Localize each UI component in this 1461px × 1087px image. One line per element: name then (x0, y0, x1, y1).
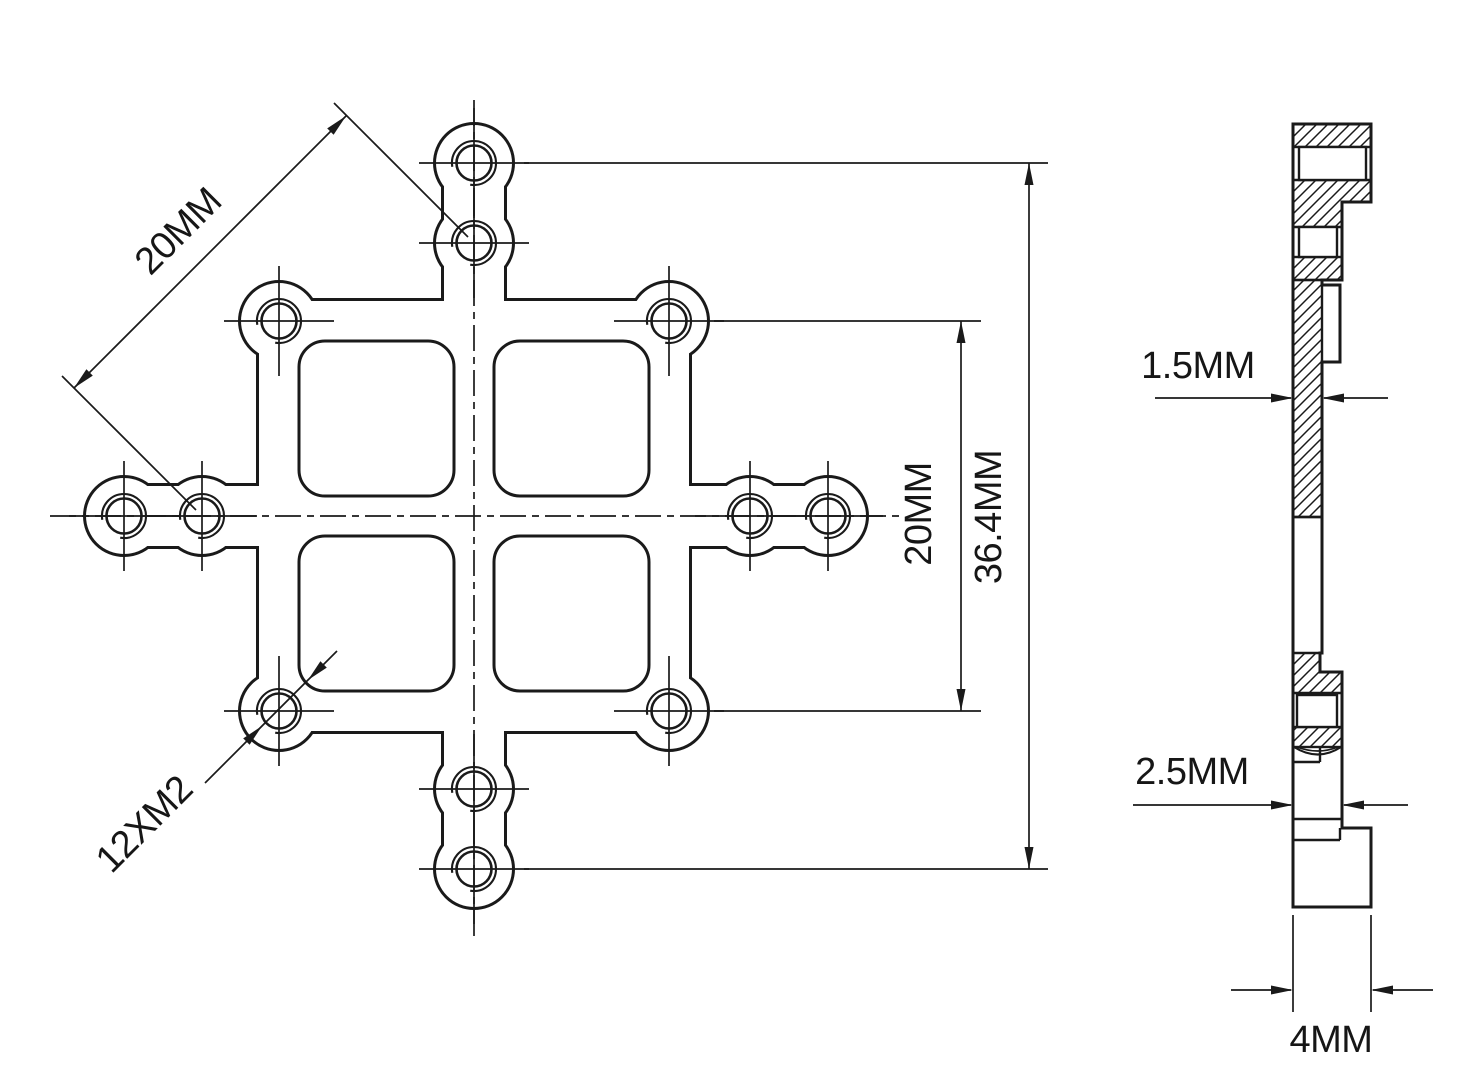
arrowhead (1322, 394, 1344, 403)
dim-label-overall: 36.4MM (968, 450, 1010, 584)
dim-label-diagonal: 20MM (127, 180, 230, 283)
arrowhead (1271, 801, 1293, 810)
arrowhead (1025, 163, 1034, 185)
dim-label-web: 1.5MM (1141, 345, 1255, 387)
dim-label-mid: 2.5MM (1135, 751, 1249, 793)
dim-label-base: 4MM (1290, 1019, 1373, 1061)
hole-section (1299, 227, 1337, 257)
arrowhead (1342, 801, 1364, 810)
side-view: 1.5MM 2.5MM 4MM (1133, 124, 1433, 1061)
dim-label-vertical: 20MM (898, 462, 940, 566)
thread-callout-label: 12XM2 (88, 768, 201, 881)
hatch-region (1293, 653, 1342, 693)
opening-cutout-top-left (299, 341, 454, 496)
threaded-hole-marker (419, 814, 529, 924)
dim-mid-2-5mm: 2.5MM (1133, 751, 1408, 810)
hatch-region (1293, 124, 1371, 147)
dim-base-4mm: 4MM (1231, 915, 1433, 1061)
opening-cutout-bottom-right (494, 536, 649, 691)
arrowhead (1271, 394, 1293, 403)
hole-section (1297, 695, 1337, 727)
front-view: 20MM 20MM 36.4MM 12XM2 (50, 100, 1048, 938)
dim-web-1-5mm: 1.5MM (1141, 345, 1388, 403)
opening-cutout-top-right (494, 341, 649, 496)
hatch-region (1293, 727, 1342, 747)
arrowhead (957, 689, 966, 711)
drawing-page: 20MM 20MM 36.4MM 12XM2 (0, 0, 1461, 1087)
hole-section (1299, 147, 1366, 180)
arrowhead (1271, 986, 1293, 995)
hatch-region (1293, 280, 1322, 517)
threaded-hole-marker (773, 461, 883, 571)
arrowhead (1371, 986, 1393, 995)
arrowhead (957, 321, 966, 343)
technical-drawing: 20MM 20MM 36.4MM 12XM2 (0, 0, 1461, 1087)
extension-lines (1293, 915, 1371, 1012)
arrowhead (1025, 847, 1034, 869)
hatch-region (1293, 257, 1342, 280)
